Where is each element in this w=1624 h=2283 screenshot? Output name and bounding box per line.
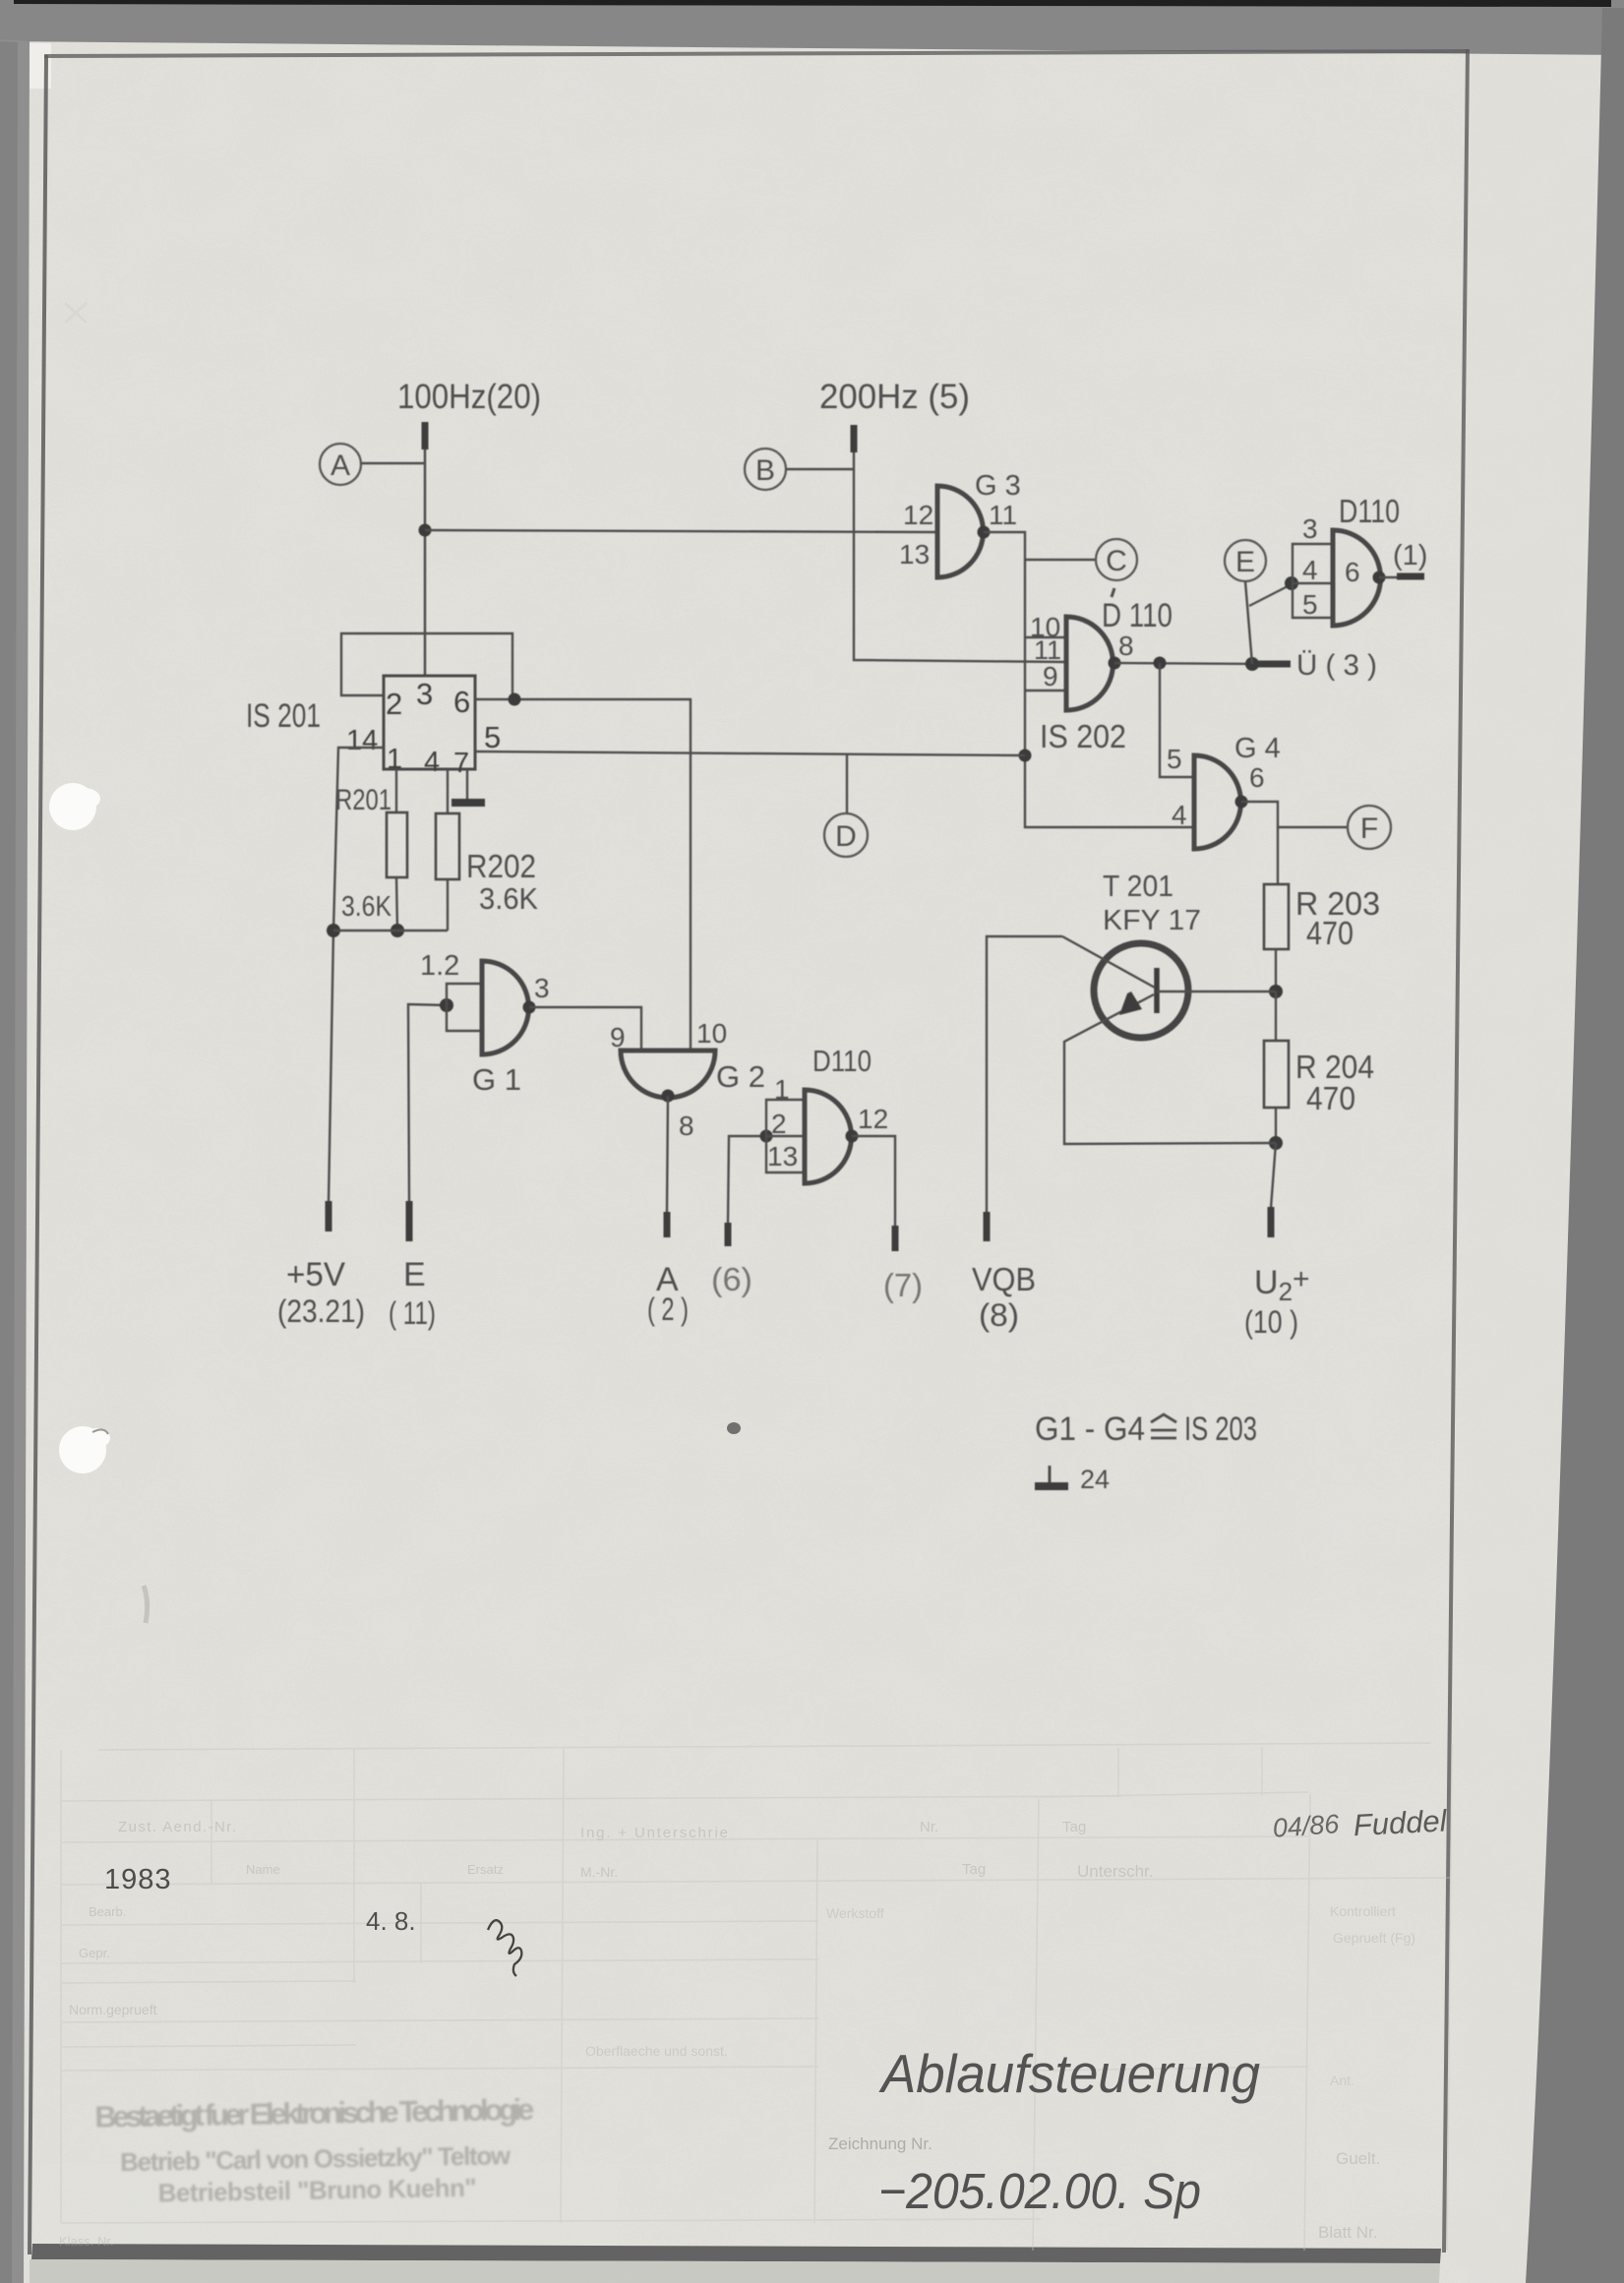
- svg-text:D: D: [835, 820, 857, 853]
- svg-text:Nr.: Nr.: [920, 1819, 938, 1835]
- svg-text:Zeichnung Nr.: Zeichnung Nr.: [828, 2134, 932, 2153]
- svg-text:Ant.: Ant.: [1330, 2073, 1354, 2088]
- svg-text:470: 470: [1306, 915, 1353, 951]
- svg-text:6: 6: [453, 685, 470, 719]
- svg-text:3.6K: 3.6K: [341, 891, 392, 923]
- svg-text:4: 4: [1302, 555, 1318, 585]
- svg-text:3: 3: [416, 677, 433, 711]
- svg-text:R201: R201: [335, 784, 391, 816]
- svg-text:5: 5: [1167, 744, 1182, 774]
- svg-text:5: 5: [484, 720, 501, 754]
- svg-text:04/86: 04/86: [1272, 1809, 1341, 1843]
- svg-text:G1 - G4: G1 - G4: [1035, 1411, 1145, 1448]
- svg-text:1983: 1983: [104, 1864, 172, 1895]
- svg-text:(23.21): (23.21): [277, 1293, 365, 1329]
- svg-text:(7): (7): [883, 1267, 923, 1303]
- svg-text:Blatt Nr.: Blatt Nr.: [1318, 2223, 1377, 2242]
- svg-text:+5V: +5V: [286, 1256, 345, 1293]
- svg-text:Betriebsteil "Bruno Kuehn": Betriebsteil "Bruno Kuehn": [157, 2173, 476, 2208]
- svg-text:100Hz(20): 100Hz(20): [397, 378, 541, 416]
- svg-text:(10 ): (10 ): [1244, 1304, 1298, 1340]
- svg-text:2: 2: [386, 687, 402, 721]
- svg-text:D 110: D 110: [1102, 597, 1173, 634]
- svg-text:4. 8.: 4. 8.: [366, 1906, 416, 1936]
- svg-text:(1): (1): [1393, 540, 1427, 571]
- svg-text:(6): (6): [711, 1261, 752, 1297]
- svg-text:3: 3: [534, 973, 550, 1003]
- svg-text:G 3: G 3: [975, 470, 1021, 502]
- svg-text:4: 4: [424, 747, 440, 778]
- svg-text:Ing. + Unterschrie: Ing. + Unterschrie: [580, 1825, 728, 1841]
- svg-text:IS 202: IS 202: [1040, 718, 1126, 754]
- svg-text:T 201: T 201: [1103, 869, 1173, 903]
- svg-text:Tag: Tag: [962, 1861, 986, 1878]
- svg-text:G 1: G 1: [472, 1062, 521, 1097]
- svg-text:D110: D110: [812, 1044, 872, 1078]
- svg-text:1: 1: [387, 744, 402, 775]
- svg-text:Guelt.: Guelt.: [1336, 2149, 1380, 2168]
- svg-text:KFY 17: KFY 17: [1103, 905, 1201, 936]
- svg-text:11: 11: [989, 500, 1017, 530]
- svg-text:13: 13: [899, 539, 930, 570]
- svg-text:9: 9: [610, 1022, 626, 1052]
- svg-text:G 4: G 4: [1234, 733, 1281, 764]
- svg-text:Fuddel: Fuddel: [1353, 1803, 1449, 1842]
- svg-text:13: 13: [767, 1141, 798, 1172]
- svg-text:1: 1: [774, 1074, 790, 1105]
- svg-text:VQB: VQB: [972, 1261, 1036, 1297]
- svg-text:Tag: Tag: [1062, 1819, 1086, 1835]
- svg-text:Name: Name: [246, 1862, 280, 1877]
- svg-text:Werkstoff: Werkstoff: [826, 1905, 884, 1921]
- svg-text:Ersatz: Ersatz: [467, 1862, 504, 1877]
- svg-text:Kontrolliert: Kontrolliert: [1330, 1903, 1396, 1919]
- svg-text:F: F: [1360, 812, 1378, 845]
- svg-text:8: 8: [679, 1111, 694, 1141]
- svg-text:B: B: [755, 454, 775, 487]
- svg-text:( 2 ): ( 2 ): [647, 1292, 689, 1327]
- svg-text:200Hz (5): 200Hz (5): [819, 378, 970, 416]
- svg-text:6: 6: [1249, 762, 1265, 793]
- svg-text:12: 12: [858, 1104, 888, 1134]
- svg-text:Geprueft (Fg): Geprueft (Fg): [1333, 1930, 1415, 1946]
- svg-text:E: E: [403, 1256, 426, 1293]
- svg-text:4: 4: [1172, 800, 1187, 830]
- svg-text:IS 203: IS 203: [1184, 1411, 1257, 1448]
- svg-text:1.2: 1.2: [420, 950, 459, 982]
- svg-text:24: 24: [1080, 1465, 1110, 1494]
- svg-text:14: 14: [346, 725, 378, 756]
- svg-text:3.6K: 3.6K: [479, 881, 538, 916]
- svg-text:2: 2: [771, 1109, 787, 1139]
- svg-text:Ü ( 3 ): Ü ( 3 ): [1296, 649, 1377, 682]
- svg-text:Klass. Nr.: Klass. Nr.: [59, 2234, 114, 2249]
- svg-text:470: 470: [1306, 1080, 1355, 1116]
- svg-text:G 2: G 2: [716, 1059, 765, 1094]
- svg-text:( 11): ( 11): [389, 1295, 436, 1331]
- svg-text:Ablaufsteuerung: Ablaufsteuerung: [878, 2043, 1260, 2104]
- svg-text:C: C: [1106, 545, 1127, 577]
- svg-text:5: 5: [1302, 589, 1318, 620]
- svg-text:A: A: [331, 450, 350, 482]
- svg-text:10: 10: [696, 1018, 727, 1049]
- svg-text:3: 3: [1302, 513, 1318, 544]
- svg-text:Oberflaeche und sonst.: Oberflaeche und sonst.: [585, 2043, 728, 2059]
- svg-text:Zust. Aend.-Nr.: Zust. Aend.-Nr.: [118, 1819, 236, 1835]
- svg-text:6: 6: [1345, 557, 1360, 587]
- svg-text:Unterschr.: Unterschr.: [1077, 1862, 1153, 1881]
- svg-text:(8): (8): [979, 1297, 1019, 1333]
- svg-text:M.-Nr.: M.-Nr.: [580, 1864, 618, 1880]
- svg-text:12: 12: [903, 500, 933, 530]
- svg-text:Bearb.: Bearb.: [89, 1904, 126, 1919]
- svg-text:E: E: [1235, 546, 1255, 578]
- svg-text:IS 201: IS 201: [246, 697, 321, 735]
- svg-text:9: 9: [1043, 661, 1058, 691]
- svg-text:Norm.geprueft: Norm.geprueft: [69, 2002, 157, 2017]
- svg-text:Gepr.: Gepr.: [79, 1946, 110, 1960]
- svg-text:8: 8: [1118, 631, 1134, 661]
- svg-text:−205.02.00. Sp: −205.02.00. Sp: [878, 2163, 1201, 2219]
- svg-text:D110: D110: [1339, 493, 1400, 529]
- svg-text:R202: R202: [466, 848, 536, 884]
